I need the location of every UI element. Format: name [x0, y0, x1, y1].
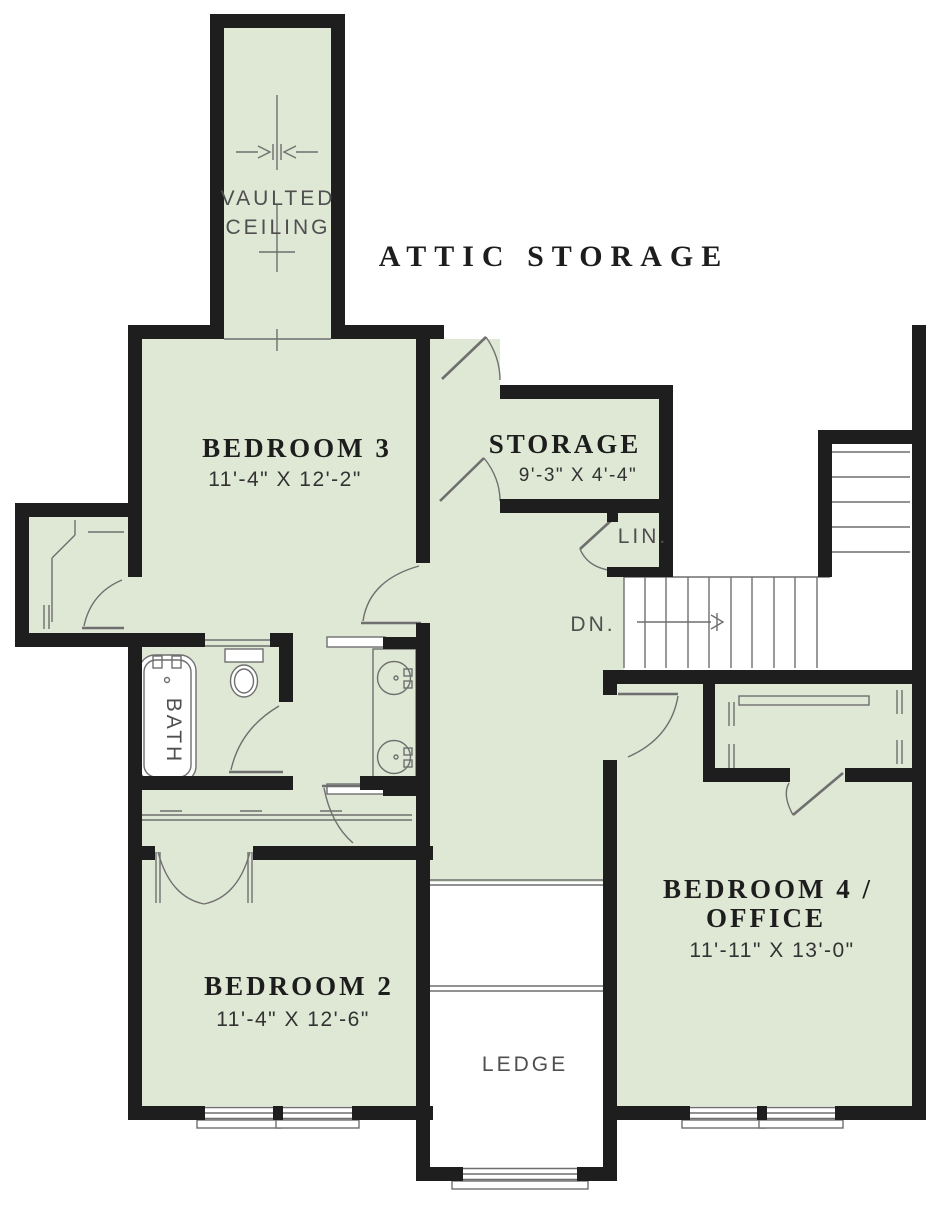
- bedroom3-dims: 11'-4" X 12'-2": [208, 468, 362, 491]
- floor-plan-page: ATTIC STORAGE VAULTED CEILING BEDROOM 3 …: [0, 0, 950, 1206]
- vaulted-ceiling-label-line1: VAULTED: [221, 187, 336, 210]
- bedroom4-dims: 11'-11" X 13'-0": [689, 939, 854, 962]
- storage-dims: 9'-3" X 4'-4": [519, 465, 637, 486]
- ledge-label: LEDGE: [482, 1053, 568, 1076]
- bedroom3-name: BEDROOM 3: [202, 433, 392, 463]
- storage-name: STORAGE: [489, 429, 642, 459]
- bedroom2-window-2: [276, 1106, 359, 1128]
- bedroom2-dims: 11'-4" X 12'-6": [216, 1008, 370, 1031]
- ledge-window: [452, 1167, 588, 1189]
- bedroom4-window-1: [682, 1106, 765, 1128]
- bedroom4-name-line1: BEDROOM 4 /: [663, 874, 873, 904]
- linen-label: LIN.: [618, 525, 669, 548]
- attic-storage-title: ATTIC STORAGE: [379, 240, 729, 273]
- vaulted-ceiling-label-line2: CEILING: [225, 216, 330, 239]
- ledge-opening-lines: [430, 880, 603, 991]
- bedroom2-name: BEDROOM 2: [204, 971, 394, 1001]
- bath-label: BATH: [162, 698, 185, 764]
- bedroom2-window-1: [197, 1106, 281, 1128]
- floor-plan: ATTIC STORAGE VAULTED CEILING BEDROOM 3 …: [0, 0, 950, 1206]
- bedroom4-window-2: [759, 1106, 843, 1128]
- bedroom4-name-line2: OFFICE: [706, 903, 826, 933]
- down-label: DN.: [570, 613, 615, 636]
